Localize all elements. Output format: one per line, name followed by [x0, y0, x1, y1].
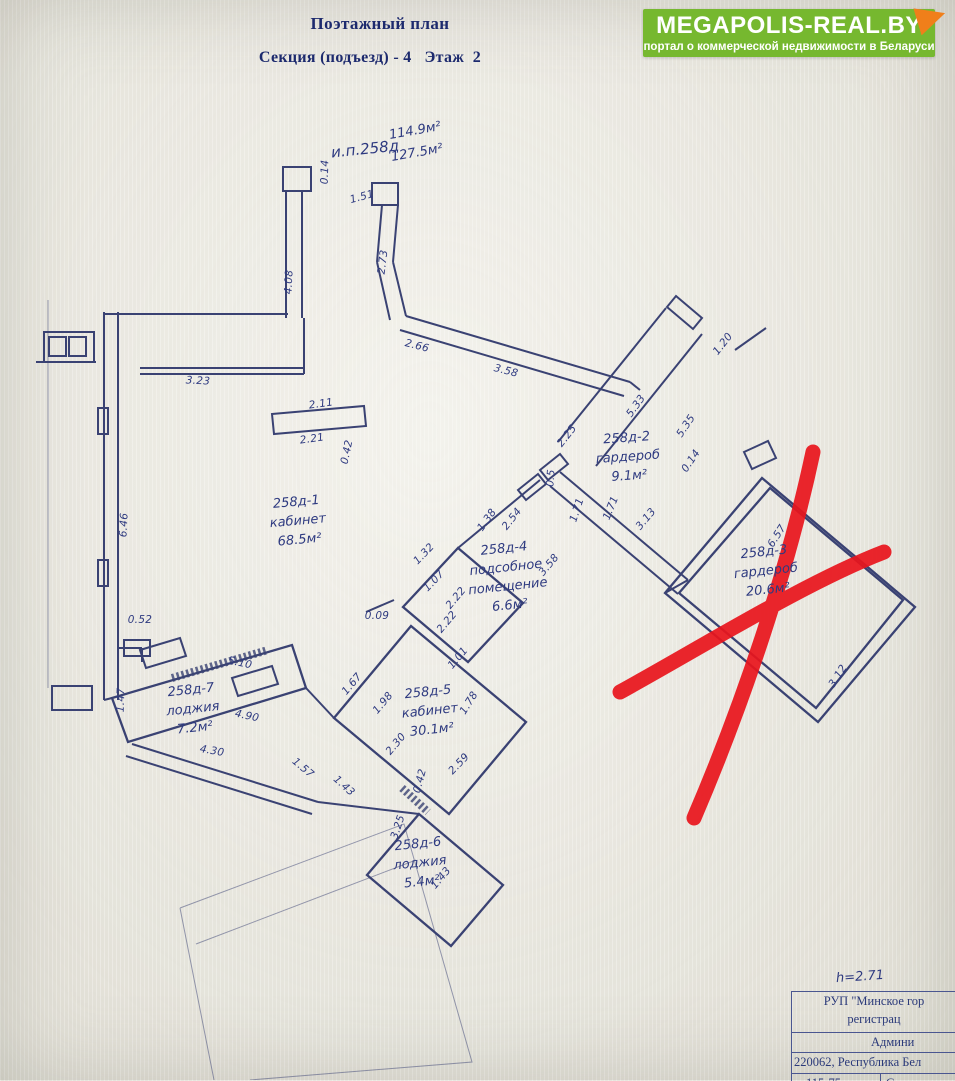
floorplan-fixtures	[36, 167, 776, 710]
stamp-table-row: 220062, Республика Бел	[792, 1053, 955, 1074]
stamp-table-text: 220062, Республика Бел	[794, 1053, 955, 1071]
floorplan-walls	[104, 191, 766, 814]
stamp-table-text: регистрац	[792, 1010, 955, 1028]
stamp-table-text: РУП "Минское гор	[792, 992, 955, 1010]
red-cross-mark	[620, 452, 884, 818]
floorplan-hatched-railing	[172, 650, 428, 812]
stamp-table-row: Админи	[792, 1033, 955, 1053]
registry-stamp-table: РУП "Минское горрегистрацАдмини220062, Р…	[791, 991, 955, 1081]
floorplan-drawing	[0, 0, 955, 1080]
stamp-table-row: РУП "Минское горрегистрац	[792, 992, 955, 1033]
stamp-table-text: Админи	[871, 1033, 955, 1051]
